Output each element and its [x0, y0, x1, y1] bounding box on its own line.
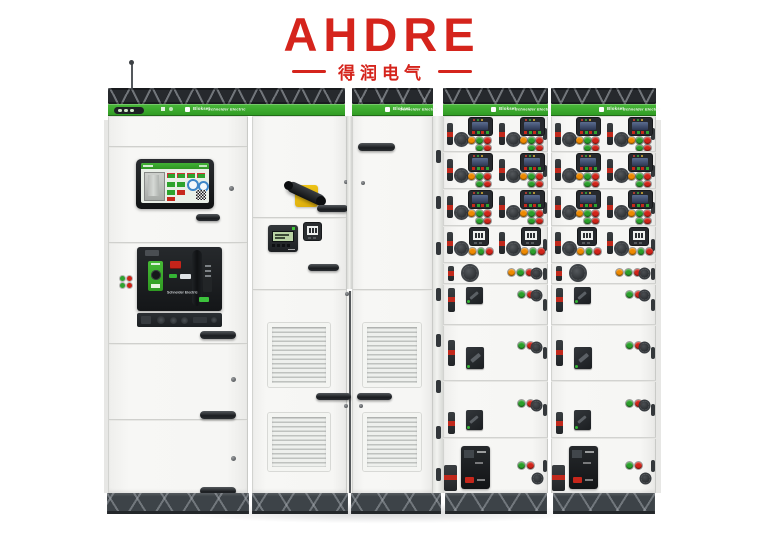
pushbutton-red	[644, 137, 651, 144]
relay-key	[277, 244, 280, 247]
drawer-latch	[556, 340, 563, 366]
door-screw	[345, 292, 349, 296]
hmi-header-mark	[199, 165, 207, 167]
mccb-panel	[572, 450, 582, 458]
drawer-latch	[555, 232, 561, 254]
pushbutton-green	[636, 173, 643, 180]
latch-red-stripe	[448, 421, 455, 426]
cam-switch-led	[575, 300, 578, 303]
product-logo-mark	[599, 107, 604, 112]
controller-key	[632, 204, 635, 207]
controller-key	[641, 204, 644, 207]
rotary-knob	[456, 170, 467, 181]
row-seam	[551, 437, 656, 439]
controller-led	[525, 119, 527, 121]
latch-red-stripe	[444, 475, 457, 480]
controller-key	[477, 167, 480, 170]
drawer-latch	[448, 412, 455, 434]
pushbutton-green	[626, 342, 633, 349]
mccb-mark	[475, 462, 483, 464]
controller-key	[632, 131, 635, 134]
row-seam	[443, 262, 548, 264]
controller-led	[637, 119, 639, 121]
controller-key	[481, 204, 484, 207]
base-plinth	[445, 493, 547, 514]
pushbutton-green	[584, 218, 591, 225]
controller-display	[632, 195, 648, 203]
rail-hinge	[436, 380, 441, 393]
protection-relay	[268, 225, 298, 252]
pushbutton-green	[586, 248, 593, 255]
rail-hinge	[436, 468, 441, 481]
controller-key	[477, 204, 480, 207]
pushbutton-orange	[576, 210, 583, 217]
controller-key	[533, 131, 536, 134]
controller-key	[481, 167, 484, 170]
power-meter-bar	[635, 233, 637, 238]
drawer-unit	[604, 152, 654, 189]
pushbutton-green	[528, 218, 535, 225]
mcc-row	[443, 381, 548, 438]
latch-red-stripe	[555, 205, 561, 210]
cam-switch-handle	[470, 291, 480, 300]
drawer-unit	[496, 116, 546, 152]
door-screw	[361, 181, 365, 185]
pushbutton-red	[592, 137, 599, 144]
pushbutton-red	[646, 248, 653, 255]
drawer-latch	[607, 196, 613, 218]
controller-key	[486, 131, 489, 134]
pushbutton-red	[635, 462, 642, 469]
pushbutton-red	[538, 248, 545, 255]
pushbutton-green	[528, 137, 535, 144]
controller-key	[646, 204, 649, 207]
controller-key	[632, 167, 635, 170]
controller-key	[637, 167, 640, 170]
controller-key	[646, 167, 649, 170]
rail-hinge	[436, 150, 441, 163]
brand-band: Blokset Schneider Electric	[108, 104, 345, 116]
power-meter-key	[479, 242, 482, 244]
controller-led	[581, 192, 583, 194]
acb-dial	[151, 270, 161, 280]
brand-tagline: 得润电气	[338, 59, 426, 84]
pushbutton-orange	[520, 173, 527, 180]
drawer-unit	[496, 189, 546, 226]
acb-unit-label	[151, 263, 160, 265]
hmi-device-image	[144, 172, 165, 201]
cam-switch-handle	[470, 415, 480, 424]
pushbutton-red	[592, 181, 599, 188]
pushbutton-green	[584, 173, 591, 180]
controller-led	[477, 155, 479, 157]
power-meter	[522, 228, 540, 245]
drawer-unit	[604, 226, 654, 263]
controller-key	[641, 167, 644, 170]
mcc-row	[551, 116, 656, 152]
panel-seam	[353, 289, 432, 291]
acb-counter-display	[180, 274, 191, 279]
acb-maker-text: Schneider Electric	[167, 291, 198, 295]
pushbutton-orange	[469, 248, 476, 255]
power-meter-bar	[641, 233, 643, 238]
relay-display-line	[275, 237, 285, 239]
drawer-unit	[604, 116, 654, 152]
acb-charging-unit	[148, 261, 163, 291]
cradle-port	[157, 316, 165, 324]
latch-red-stripe	[555, 132, 561, 137]
pushbutton-red	[484, 218, 491, 225]
drawer-latch	[607, 232, 613, 254]
roof-truss-band	[108, 88, 345, 104]
controller-key	[637, 131, 640, 134]
pushbutton-red	[644, 210, 651, 217]
row-right-latch	[651, 299, 655, 311]
product-logo-text: Blokset	[499, 106, 516, 111]
controller-key	[641, 131, 644, 134]
mcc-row	[551, 438, 656, 493]
drawer-latch	[448, 288, 455, 312]
ventilation-grille	[268, 323, 330, 387]
switch-handle-end	[284, 181, 293, 190]
pushbutton-green	[518, 291, 525, 298]
row-seam	[551, 324, 656, 326]
rating-plate-line	[205, 265, 211, 267]
pushbutton-orange	[576, 173, 583, 180]
mccb-trip-button	[573, 477, 582, 483]
latch-red-stripe	[499, 205, 505, 210]
meter-key	[308, 237, 311, 239]
meter-key	[313, 237, 316, 239]
rotary-knob	[456, 207, 467, 218]
drawer-unit	[444, 116, 494, 152]
drawer-latch	[607, 123, 613, 145]
controller-key	[524, 167, 527, 170]
mccb-breaker	[461, 446, 490, 489]
rotary-knob	[508, 134, 519, 145]
panel-seam	[109, 419, 247, 421]
controller-led	[533, 192, 535, 194]
power-meter-bar	[527, 233, 529, 238]
power-meter-bar	[583, 233, 585, 238]
mccb-mark	[585, 451, 594, 453]
controller-led	[529, 155, 531, 157]
mccb-panel	[464, 450, 474, 458]
power-meter-bar	[478, 233, 480, 238]
rotary-knob	[456, 243, 467, 254]
rotary-knob	[616, 170, 627, 181]
pushbutton-green	[476, 173, 483, 180]
power-meter-key	[582, 242, 585, 244]
latch-red-stripe	[555, 168, 561, 173]
maker-logo-text: Schneider Electric	[515, 107, 553, 112]
drawer-unit	[552, 189, 602, 226]
pushbutton-orange	[468, 210, 475, 217]
power-meter-bar	[586, 233, 588, 238]
pushbutton-green	[626, 462, 633, 469]
cam-switch	[574, 287, 591, 304]
row-right-latch	[543, 347, 547, 359]
pushbutton-red	[536, 173, 543, 180]
cam-switch	[574, 410, 591, 430]
mcc-cabinet-1	[443, 116, 548, 493]
relay-led	[292, 227, 295, 230]
mccb-trip-button	[465, 477, 474, 483]
mcc-row	[551, 263, 656, 284]
controller-key	[589, 167, 592, 170]
latch-red-stripe	[447, 205, 453, 210]
controller-key	[524, 204, 527, 207]
relay-key	[282, 244, 285, 247]
hmi-widget-chip	[167, 190, 175, 195]
meter-bar	[312, 228, 314, 233]
pushbutton-red	[644, 218, 651, 225]
latch-red-stripe	[555, 241, 561, 246]
pushbutton-green	[636, 181, 643, 188]
controller-led	[637, 192, 639, 194]
panel-meter-display	[307, 226, 318, 235]
pushbutton-orange	[628, 137, 635, 144]
cam-switch	[466, 410, 483, 430]
pushbutton-green	[518, 342, 525, 349]
cradle-port	[170, 317, 177, 324]
door-handle	[317, 205, 348, 212]
latch-red-stripe	[448, 350, 455, 355]
panel-meter	[304, 223, 321, 240]
rating-plate-line	[205, 275, 211, 277]
latch-red-stripe	[556, 271, 562, 276]
controller-led	[533, 155, 535, 157]
mcc-row	[551, 325, 656, 381]
rotary-knob	[564, 207, 575, 218]
controller-led	[481, 119, 483, 121]
rail-hinge	[436, 196, 441, 209]
lamp-socket	[640, 269, 649, 278]
lamp-socket	[532, 343, 541, 352]
rotary-knob	[571, 266, 585, 280]
motor-controller	[577, 118, 600, 135]
mcc-row	[443, 263, 548, 284]
controller-led	[641, 155, 643, 157]
motor-controller	[629, 191, 652, 208]
pushbutton-green	[517, 269, 524, 276]
status-indicator-strip	[114, 107, 144, 114]
row-right-latch	[651, 404, 655, 416]
power-meter-key	[639, 242, 642, 244]
latch-red-stripe	[499, 132, 505, 137]
product-logo-text: Blokset	[607, 106, 624, 111]
rail-hinge	[436, 288, 441, 301]
product-logo-mark	[385, 107, 390, 112]
pilot-light-red	[127, 276, 132, 281]
controller-key	[486, 204, 489, 207]
motor-controller	[521, 154, 544, 171]
pushbutton-green	[636, 210, 643, 217]
ventilation-grille	[363, 413, 421, 471]
product-logo-mark	[491, 107, 496, 112]
hmi-widget-chip	[167, 173, 175, 178]
hmi-widget-chip	[177, 182, 185, 187]
drawer-latch	[556, 266, 562, 281]
power-meter	[578, 228, 596, 245]
drawer-latch	[555, 159, 561, 181]
motor-controller	[629, 154, 652, 171]
controller-key	[538, 167, 541, 170]
latch-red-stripe	[499, 241, 505, 246]
brand-band: Blokset Schneider Electric	[443, 104, 548, 116]
controller-display	[524, 195, 540, 203]
roof-truss-band	[551, 88, 656, 104]
controller-led	[473, 155, 475, 157]
panel-seam	[109, 146, 247, 148]
pushbutton-red	[644, 173, 651, 180]
controller-key	[529, 131, 532, 134]
pushbutton-green	[584, 210, 591, 217]
lamp-socket	[532, 269, 541, 278]
indicator-lamp	[169, 107, 173, 111]
panel-seam	[253, 217, 346, 219]
switchgear-product-photo: AHDRE 得润电气 Blokset Schneider Electric Bl…	[0, 0, 764, 539]
hmi-header	[141, 163, 209, 169]
pushbutton-red	[536, 181, 543, 188]
pushbutton-green	[528, 173, 535, 180]
row-seam	[443, 437, 548, 439]
controller-key	[585, 167, 588, 170]
controller-key	[472, 167, 475, 170]
mcc-row	[443, 116, 548, 152]
controller-key	[585, 131, 588, 134]
controller-led	[633, 119, 635, 121]
row-right-latch	[543, 299, 547, 311]
pushbutton-red	[484, 210, 491, 217]
controller-key	[472, 204, 475, 207]
controller-led	[481, 192, 483, 194]
pilot-light-green	[120, 276, 125, 281]
brand-logo: AHDRE	[0, 10, 764, 59]
hmi-screen	[141, 163, 209, 203]
pushbutton-green	[638, 248, 645, 255]
latch-red-stripe	[447, 241, 453, 246]
controller-key	[472, 131, 475, 134]
antenna-tip	[129, 60, 134, 65]
mcc-row	[443, 325, 548, 381]
controller-display	[472, 158, 488, 166]
hmi-widget-chip	[177, 173, 185, 178]
motor-controller	[469, 191, 492, 208]
pushbutton-green	[625, 269, 632, 276]
door-screw	[231, 377, 236, 382]
controller-led	[533, 119, 535, 121]
row-seam	[443, 324, 548, 326]
row-seam	[443, 283, 548, 285]
pushbutton-red	[592, 218, 599, 225]
relay-display-line	[275, 234, 289, 236]
drawer-latch	[607, 159, 613, 181]
mcc-row	[443, 284, 548, 325]
mcc-row	[443, 189, 548, 226]
drawer-latch	[555, 196, 561, 218]
controller-display	[472, 195, 488, 203]
power-meter-bar	[481, 233, 483, 238]
mccb-breaker	[569, 446, 598, 489]
drawer-latch	[499, 232, 505, 254]
acb-unit-label	[151, 284, 160, 288]
power-meter-key	[531, 242, 534, 244]
latch-red-stripe	[607, 241, 613, 246]
pushbutton-orange	[628, 173, 635, 180]
maker-logo-text: Schneider Electric	[400, 107, 438, 112]
drawer-latch	[552, 465, 565, 491]
controller-key	[580, 204, 583, 207]
hmi-widget-chip	[187, 173, 195, 178]
controller-led	[477, 119, 479, 121]
pushbutton-red	[536, 210, 543, 217]
pushbutton-red	[536, 218, 543, 225]
power-meter-key	[526, 242, 529, 244]
pushbutton-green	[584, 181, 591, 188]
controller-key	[538, 204, 541, 207]
hmi-qr-code	[196, 190, 206, 200]
mccb-mark	[477, 479, 485, 481]
power-meter-key	[587, 242, 590, 244]
controller-key	[646, 131, 649, 134]
controller-key	[529, 204, 532, 207]
hmi-widget-chip	[177, 190, 185, 195]
controller-led	[481, 155, 483, 157]
drawer-latch	[447, 232, 453, 254]
mcc-row	[551, 152, 656, 189]
rotary-knob	[564, 243, 575, 254]
base-plinth	[107, 493, 249, 514]
air-circuit-breaker: Schneider Electric	[137, 247, 222, 311]
mcc-row	[443, 152, 548, 189]
controller-key	[533, 167, 536, 170]
controller-led	[473, 119, 475, 121]
maker-logo-text: Schneider Electric	[208, 107, 246, 112]
cam-switch-led	[467, 365, 470, 368]
cam-switch	[574, 347, 592, 369]
maker-logo-text: Schneider Electric	[623, 107, 661, 112]
latch-red-stripe	[448, 297, 455, 302]
rotary-knob	[564, 170, 575, 181]
door-screw	[229, 186, 234, 191]
relay-key	[287, 244, 290, 247]
controller-key	[580, 167, 583, 170]
row-seam	[551, 380, 656, 382]
meter-bar	[309, 228, 311, 233]
hmi-widget-chip	[167, 182, 175, 187]
pushbutton-green	[530, 248, 537, 255]
controller-led	[589, 119, 591, 121]
drawer-unit	[444, 226, 494, 263]
hmi-device-inner	[148, 175, 159, 196]
controller-key	[529, 167, 532, 170]
indicator-dot	[118, 109, 122, 113]
door-handle	[308, 264, 339, 271]
rotary-knob	[508, 243, 519, 254]
rotary-knob	[616, 134, 627, 145]
controller-key	[585, 204, 588, 207]
panel-seam	[253, 289, 346, 291]
controller-led	[585, 155, 587, 157]
row-right-latch	[543, 404, 547, 416]
pushbutton-red	[484, 181, 491, 188]
lamp-socket	[641, 474, 650, 483]
controller-key	[477, 131, 480, 134]
controller-led	[633, 192, 635, 194]
cam-switch-led	[575, 426, 578, 429]
relay-key	[272, 244, 275, 247]
